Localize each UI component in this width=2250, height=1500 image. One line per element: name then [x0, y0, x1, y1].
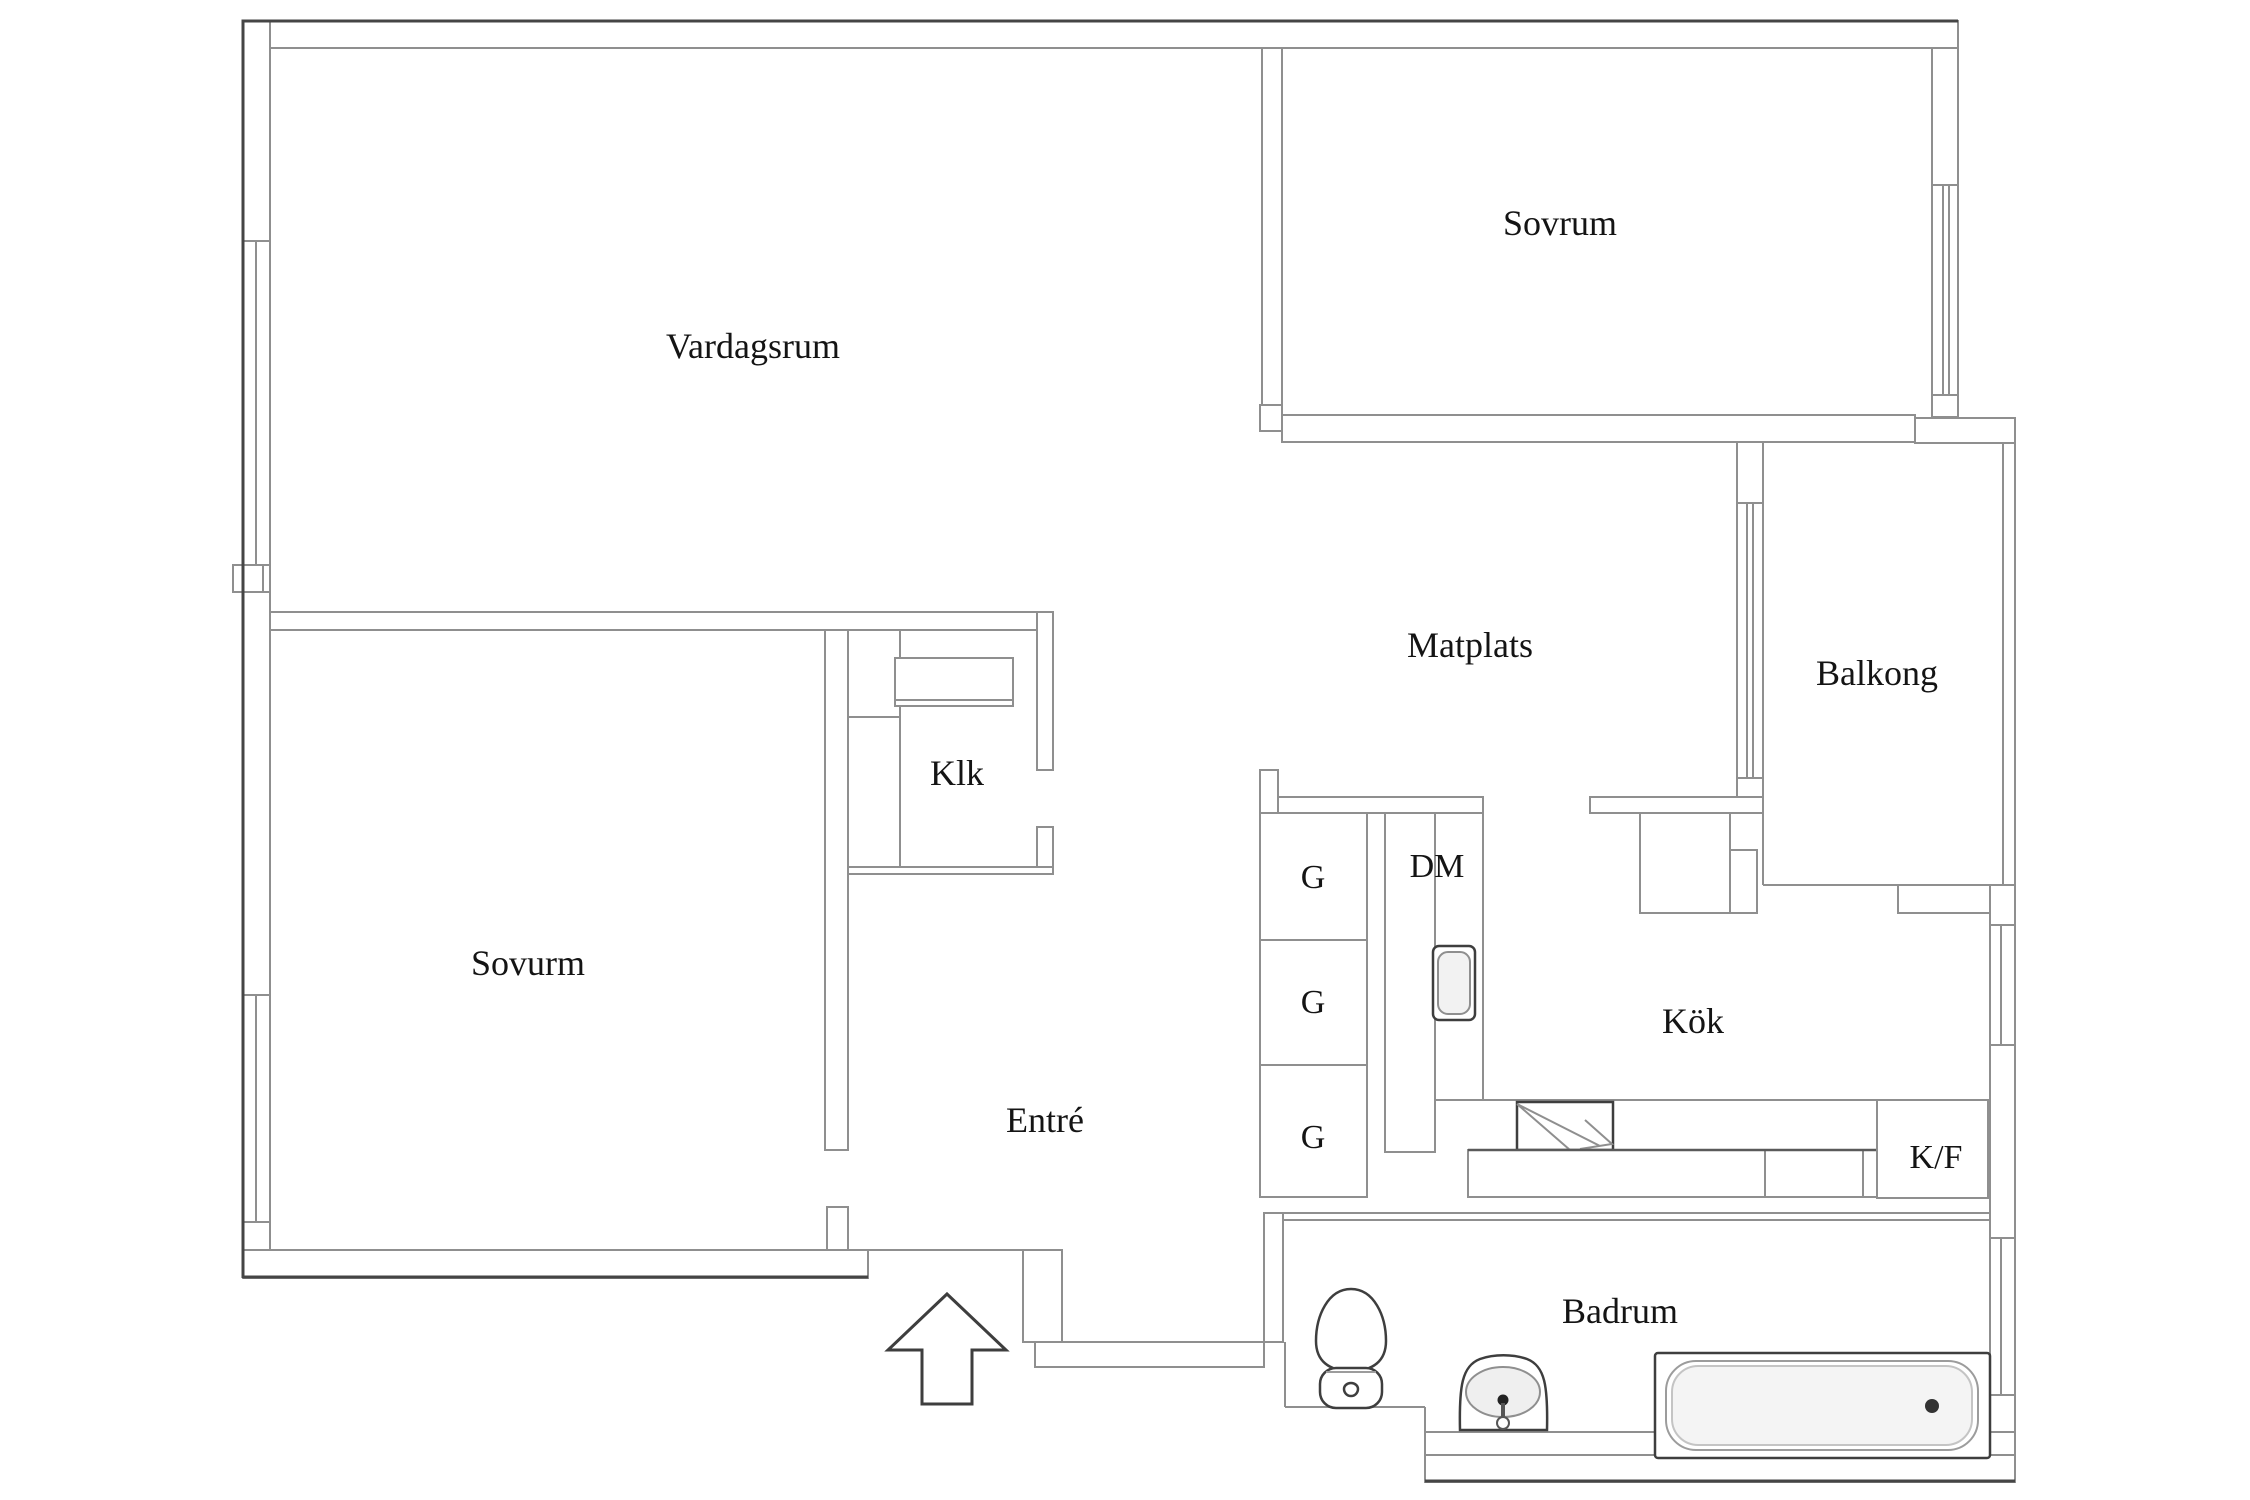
- wall-east-lower: [1990, 885, 2015, 1482]
- stove-icon: [1517, 1102, 1613, 1150]
- wall-badrum-north: [1283, 1213, 1990, 1220]
- room-label-vardagsrum: Vardagsrum: [666, 326, 840, 366]
- floorplan-page: Vardagsrum Sovrum Matplats Balkong Klk S…: [0, 0, 2250, 1500]
- floorplan-svg: Vardagsrum Sovrum Matplats Balkong Klk S…: [0, 0, 2250, 1500]
- wall-kitchen-top-right: [1590, 797, 1763, 813]
- window-latch-icon: [233, 565, 263, 592]
- cupboard-box: [1640, 813, 1730, 913]
- wall-top: [243, 21, 1958, 48]
- wall-bottom-left: [243, 1250, 868, 1278]
- appliance-label-g3: G: [1301, 1119, 1326, 1156]
- kitchen-sink-icon: [1433, 946, 1475, 1020]
- wall-kitchen-top-left: [1278, 797, 1483, 813]
- room-label-sovrum: Sovrum: [1503, 203, 1617, 243]
- appliance-label-dm: DM: [1410, 848, 1465, 885]
- wall-kitchen-stub: [1260, 770, 1278, 813]
- appliance-label-g1: G: [1301, 859, 1326, 896]
- room-label-balkong: Balkong: [1816, 653, 1938, 693]
- wall-balkong-east: [2003, 443, 2015, 885]
- appliance-label-kf: K/F: [1910, 1139, 1963, 1176]
- wall-klk-south: [848, 867, 1053, 874]
- entrance-arrow-icon: [888, 1294, 1006, 1404]
- appliance-label-g2: G: [1301, 984, 1326, 1021]
- wall-divider-foot: [1260, 405, 1282, 431]
- wall-sovrum-southeast: [1915, 418, 2015, 443]
- toilet-icon: [1316, 1289, 1386, 1408]
- wall-entry-L-vertical: [1023, 1250, 1062, 1342]
- klk-wardrobe-icon: [848, 630, 1013, 867]
- room-label-klk: Klk: [930, 753, 984, 793]
- wall-cupboard-side: [1730, 850, 1757, 913]
- wall-badrum-west: [1264, 1213, 1283, 1342]
- drain-icon: [1925, 1399, 1939, 1413]
- room-label-matplats: Matplats: [1407, 625, 1533, 665]
- walls-group: [233, 21, 2015, 1482]
- wall-sovurm-east: [825, 630, 848, 1150]
- wall-vardagsrum-south: [270, 612, 1053, 630]
- counter-lower: [1468, 1150, 1877, 1197]
- wall-sovrum-south: [1282, 415, 1915, 442]
- bathtub-icon: [1655, 1353, 1990, 1458]
- room-label-kok: Kök: [1662, 1001, 1724, 1041]
- wall-klk-east-upper: [1037, 612, 1053, 770]
- outer-boundary-accent: [243, 21, 1958, 1278]
- room-label-entre: Entré: [1006, 1100, 1084, 1140]
- wall-kok-east-chunk: [1898, 885, 1990, 913]
- room-label-badrum: Badrum: [1562, 1291, 1678, 1331]
- wall-entry-stub: [827, 1207, 848, 1250]
- wall-matplats-balkong: [1737, 442, 1763, 803]
- wall-divider-vardagsrum-sovrum: [1262, 48, 1282, 408]
- wall-entry-L-horizontal: [1035, 1342, 1264, 1367]
- sink-icon: [1460, 1355, 1547, 1430]
- kitchen-group: [1260, 813, 1988, 1198]
- wall-sovrum-east: [1932, 48, 1958, 417]
- room-label-sovurm: Sovurm: [471, 943, 585, 983]
